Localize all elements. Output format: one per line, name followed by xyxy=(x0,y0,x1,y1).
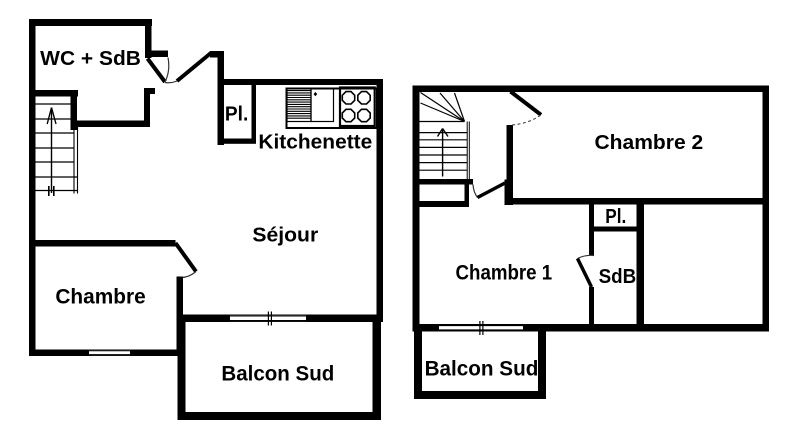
svg-text:Pl.: Pl. xyxy=(605,205,626,228)
svg-text:Kitchenette: Kitchenette xyxy=(258,131,372,154)
svg-text:Chambre: Chambre xyxy=(55,285,145,309)
svg-text:WC + SdB: WC + SdB xyxy=(40,47,141,70)
svg-text:SdB: SdB xyxy=(599,265,637,288)
svg-text:Chambre 1: Chambre 1 xyxy=(456,261,553,285)
svg-text:Balcon Sud: Balcon Sud xyxy=(425,357,539,381)
svg-text:Chambre 2: Chambre 2 xyxy=(595,131,704,154)
svg-text:Pl.: Pl. xyxy=(225,102,248,125)
svg-text:Balcon Sud: Balcon Sud xyxy=(221,362,334,386)
svg-text:Séjour: Séjour xyxy=(252,223,318,246)
